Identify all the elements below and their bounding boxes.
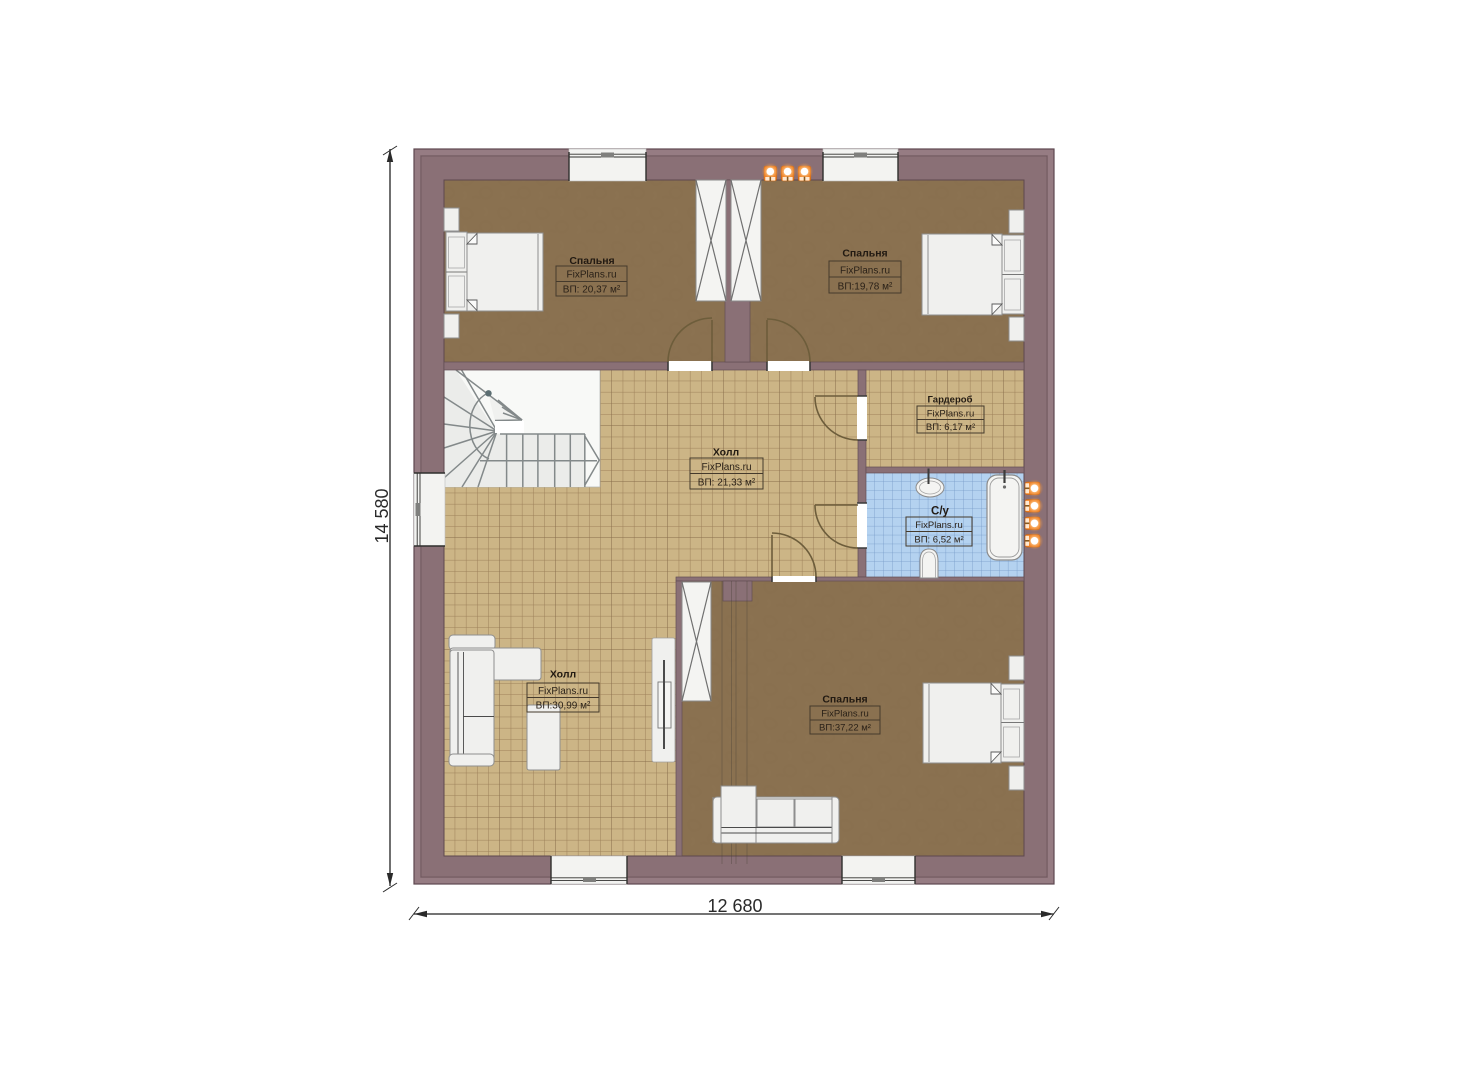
svg-text:ВП:37,22 м²: ВП:37,22 м² [819,723,871,734]
svg-text:FixPlans.ru: FixPlans.ru [927,409,975,420]
svg-text:14 580: 14 580 [372,488,392,543]
svg-text:FixPlans.ru: FixPlans.ru [538,686,588,697]
svg-text:ВП:30,99 м²: ВП:30,99 м² [536,701,591,712]
svg-text:FixPlans.ru: FixPlans.ru [701,462,751,473]
svg-text:FixPlans.ru: FixPlans.ru [566,270,616,281]
svg-text:12 680: 12 680 [707,896,762,916]
svg-text:Гардероб: Гардероб [928,395,973,406]
svg-text:FixPlans.ru: FixPlans.ru [840,266,890,277]
svg-text:FixPlans.ru: FixPlans.ru [821,709,869,720]
svg-text:ВП: 20,37 м²: ВП: 20,37 м² [563,285,621,296]
svg-text:Холл: Холл [713,447,739,459]
svg-text:ВП: 21,33 м²: ВП: 21,33 м² [698,478,756,489]
svg-text:С/у: С/у [931,506,950,518]
svg-text:FixPlans.ru: FixPlans.ru [915,520,963,531]
svg-text:Холл: Холл [550,669,576,681]
svg-text:ВП: 6,52 м²: ВП: 6,52 м² [914,535,963,546]
svg-text:Спальня: Спальня [569,255,614,267]
svg-text:ВП:19,78 м²: ВП:19,78 м² [838,282,893,293]
svg-text:Спальня: Спальня [842,248,887,260]
svg-text:Спальня: Спальня [822,694,867,706]
svg-text:ВП: 6,17 м²: ВП: 6,17 м² [926,422,975,433]
